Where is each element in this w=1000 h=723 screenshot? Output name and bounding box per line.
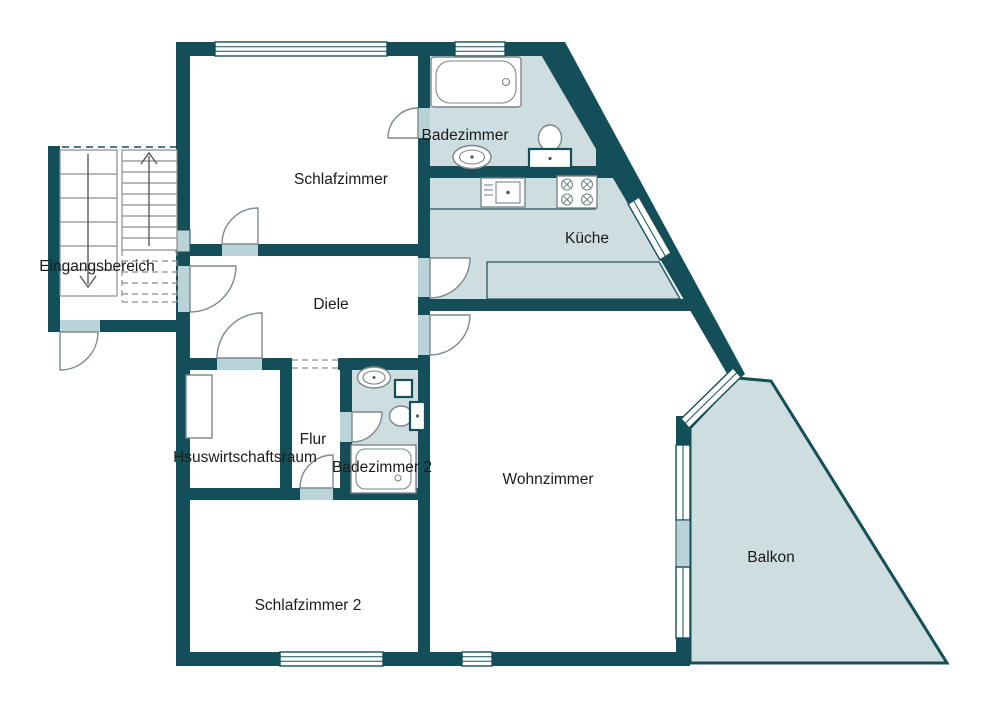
window-wohnzimmer-balcony-upper (676, 445, 690, 520)
duct-shaft-badezimmer2 (395, 380, 412, 397)
door-threshold-diele-flur (217, 358, 262, 370)
staircase (50, 147, 177, 302)
room-label-diele: Diele (313, 296, 348, 313)
wall-wc-stub (596, 142, 610, 178)
window-eingangsbereich-schlafzimmer (176, 230, 190, 252)
room-label-balkon: Balkon (747, 549, 794, 566)
room-label-schlafzimmer-2: Schlafzimmer 2 (255, 597, 362, 614)
wall-wohnzimmer-left (418, 355, 430, 652)
door-threshold-entrance (60, 320, 100, 332)
stair-flight-up (122, 150, 177, 302)
room-label-flur: Flur (300, 431, 327, 448)
window-wohnzimmer-bottom (462, 652, 492, 666)
room-label-wohnzimmer: Wohnzimmer (502, 471, 593, 488)
room-label-badezimmer: Badezimmer (422, 127, 509, 144)
wall-diele-bottom-a (190, 358, 217, 370)
floor-plan: Schlafzimmer Badezimmer Küche Eingangsbe… (0, 0, 1000, 723)
wall-diele-kueche-b (418, 297, 430, 315)
wall-hwr-flur (280, 370, 292, 488)
balkon-floor (690, 378, 947, 663)
door-arc-diele-flur (217, 313, 262, 358)
wall-diele-bottom-b (262, 358, 292, 370)
wall-diele-kueche-a (418, 244, 430, 258)
door-arc-entrance (60, 332, 98, 370)
door-arc-eingang-diele (190, 266, 236, 312)
room-label-schlafzimmer: Schlafzimmer (294, 171, 388, 188)
door-threshold-badezimmer2 (340, 412, 352, 442)
room-label-eingangsbereich: Eingangsbereich (39, 258, 154, 275)
room-label-badezimmer-2: Badezimmer 2 (332, 459, 432, 476)
stove (557, 176, 597, 208)
wall-bottom (176, 652, 690, 666)
wall-schlafzimmer-badezimmer (418, 42, 430, 256)
room-label-kueche: Küche (565, 230, 609, 247)
wall-kueche-wohnzimmer (430, 299, 692, 311)
open-passage-diele-flur (292, 360, 338, 368)
room-label-hauswirtschaftsraum: Hsuswirtschaftsraum (173, 449, 317, 466)
wall-entrance-left (48, 146, 60, 332)
kitchen-sink (481, 178, 525, 207)
window-wohnzimmer-balcony-lower (676, 567, 690, 638)
wall-left-main (176, 42, 190, 666)
door-arc-badezimmer (388, 108, 418, 138)
closet-niche-hwr (186, 375, 212, 438)
bathtub (431, 57, 521, 107)
window-badezimmer-top (455, 42, 505, 56)
window-schlafzimmer2-bottom (280, 652, 383, 666)
door-arc-wohnzimmer (430, 315, 470, 355)
door-arc-schlafzimmer (222, 208, 258, 244)
door-threshold-schlafzimmer (222, 244, 258, 256)
washbasin-badezimmer2 (358, 367, 391, 388)
door-threshold-kueche (418, 258, 430, 297)
door-threshold-schlafzimmer2 (300, 488, 333, 500)
window-wohnzimmer-balcony-mid-panel (676, 520, 690, 567)
washbasin-badezimmer (453, 146, 491, 169)
wall-badezimmer2-left-a (340, 358, 352, 412)
window-schlafzimmer-top (215, 42, 387, 56)
door-threshold-eingang-diele (178, 266, 190, 312)
door-threshold-wohnzimmer (418, 315, 430, 355)
